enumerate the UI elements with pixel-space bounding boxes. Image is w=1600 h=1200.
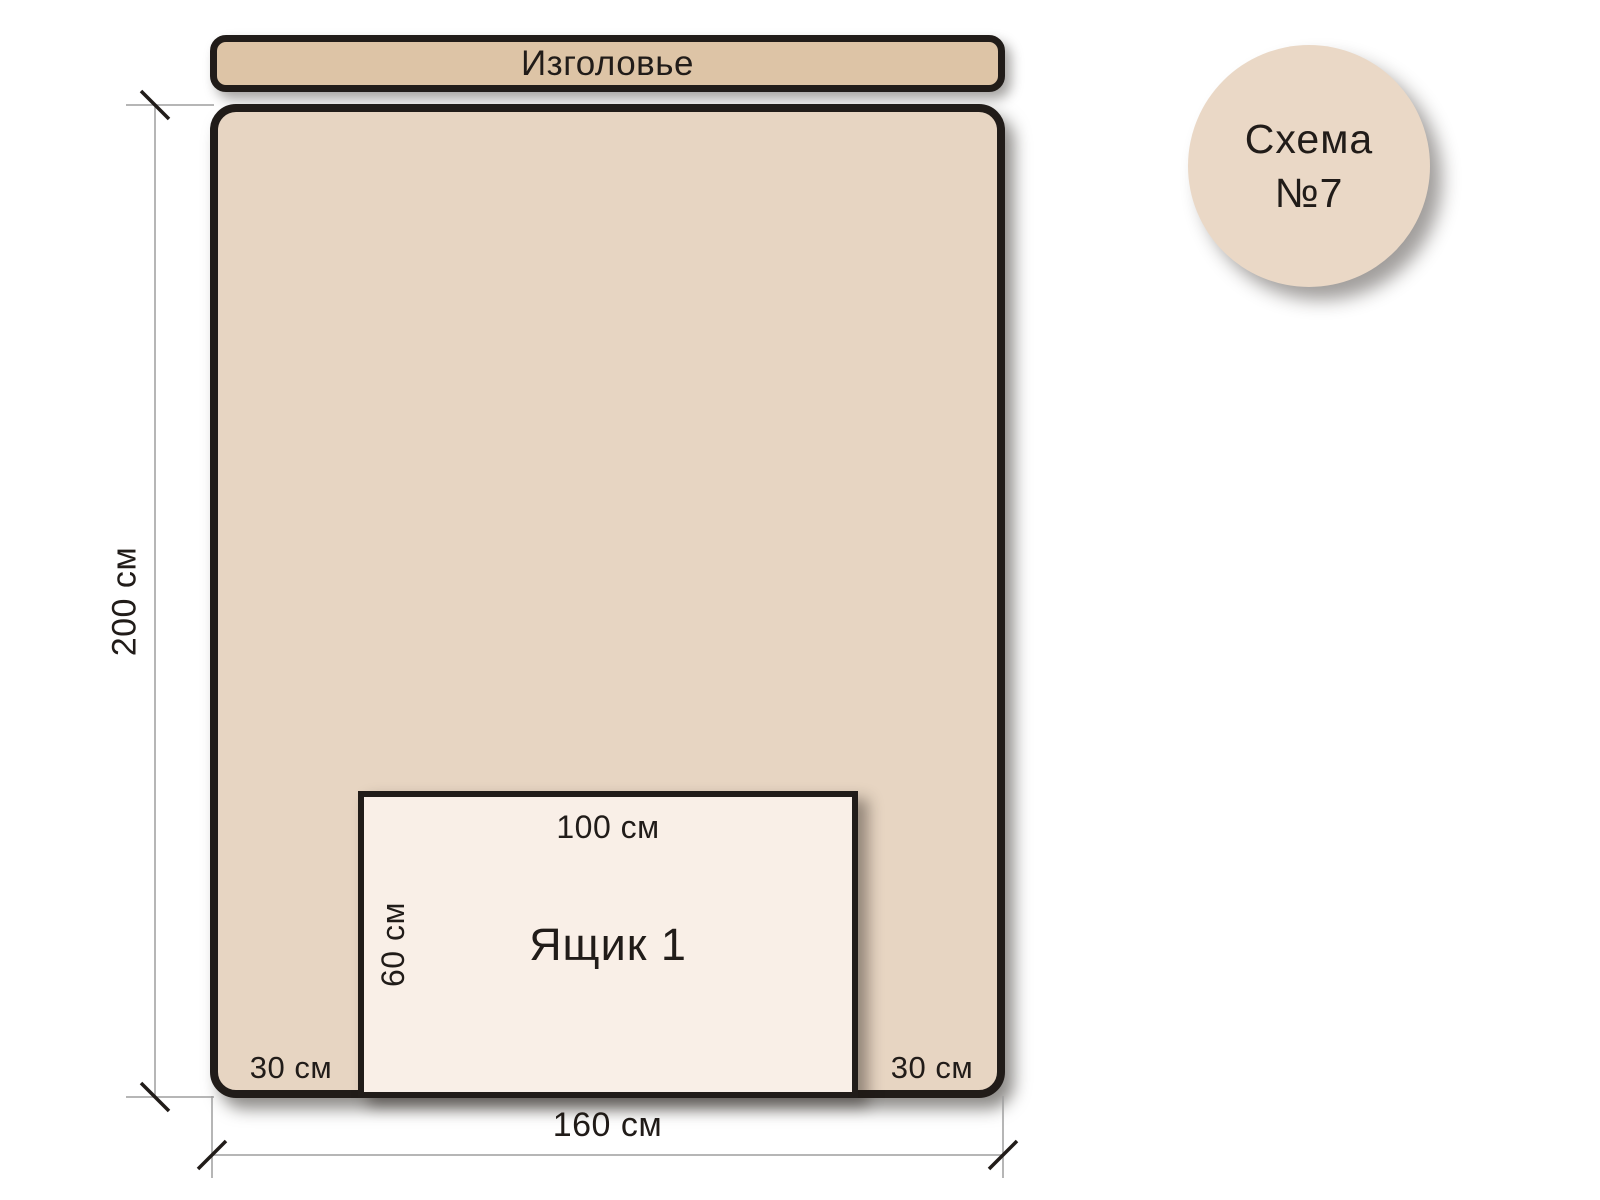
- scheme-badge-number: №7: [1275, 166, 1344, 220]
- bed-scheme-diagram: Изголовье 30 см 30 см 100 см 60 см Ящик …: [0, 0, 1600, 1200]
- bed-height-dimension-label: 200 см: [106, 546, 145, 656]
- drawer-height-dimension-wrap: 60 см: [364, 797, 422, 1092]
- headboard-label: Изголовье: [521, 44, 694, 84]
- drawer-shape: 100 см 60 см Ящик 1: [358, 791, 858, 1098]
- drawer-width-dimension-label: 100 см: [364, 809, 852, 846]
- bed-width-dimension-label: 160 см: [210, 1106, 1005, 1145]
- headboard-shape: Изголовье: [210, 35, 1005, 92]
- scheme-badge-title: Схема: [1245, 112, 1373, 166]
- drawer-height-dimension-label: 60 см: [375, 902, 412, 987]
- bed-height-dimension-wrap: 200 см: [88, 104, 162, 1098]
- drawer-name-label: Ящик 1: [529, 919, 687, 971]
- bed-left-margin-label: 30 см: [225, 1050, 357, 1086]
- scheme-number-badge: Схема №7: [1188, 45, 1430, 287]
- bed-right-margin-label: 30 см: [866, 1050, 998, 1086]
